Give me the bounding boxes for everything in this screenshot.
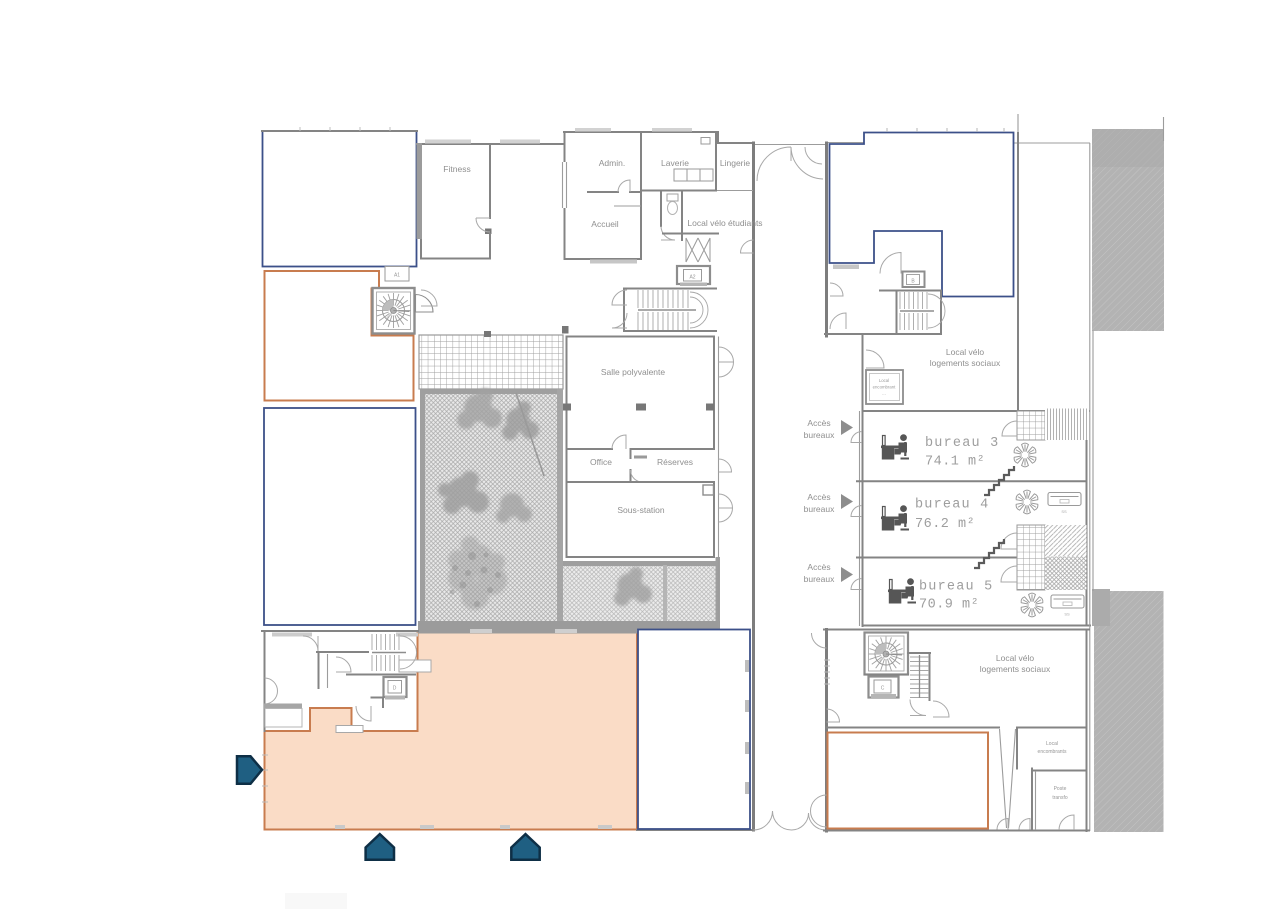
svg-text:bureaux: bureaux — [804, 574, 835, 584]
svg-text:SS: SS — [1064, 612, 1070, 617]
svg-text:76.2 m²: 76.2 m² — [915, 517, 975, 532]
svg-text:Laverie: Laverie — [661, 158, 689, 168]
svg-text:encombrants: encombrants — [1038, 749, 1067, 755]
svg-text:bureau 4: bureau 4 — [915, 498, 989, 513]
svg-text:transfo: transfo — [1052, 795, 1068, 801]
svg-text:logements sociaux: logements sociaux — [930, 358, 1001, 368]
svg-text:Accueil: Accueil — [591, 219, 619, 229]
svg-text:Local vélo étudiants: Local vélo étudiants — [687, 218, 762, 228]
svg-text:bureau 3: bureau 3 — [925, 436, 999, 451]
svg-text:encombrant: encombrant — [873, 385, 896, 390]
svg-text:Local: Local — [1046, 741, 1058, 747]
svg-text:Salle polyvalente: Salle polyvalente — [601, 367, 666, 377]
svg-text:Poste: Poste — [1054, 786, 1067, 792]
svg-text:bureaux: bureaux — [804, 430, 835, 440]
svg-text:70.9 m²: 70.9 m² — [919, 598, 979, 613]
svg-text:...: ... — [882, 391, 886, 396]
svg-text:bureau 5: bureau 5 — [919, 580, 993, 595]
svg-text:Admin.: Admin. — [599, 158, 625, 168]
svg-text:Sous-station: Sous-station — [617, 505, 665, 515]
svg-text:logements sociaux: logements sociaux — [980, 664, 1051, 674]
svg-text:SS: SS — [1061, 509, 1067, 514]
svg-text:Accès: Accès — [807, 492, 830, 502]
svg-text:Accès: Accès — [807, 562, 830, 572]
svg-text:Local vélo: Local vélo — [996, 653, 1035, 663]
svg-text:Local: Local — [879, 378, 889, 383]
svg-text:D: D — [393, 686, 397, 692]
svg-text:A1: A1 — [394, 273, 400, 279]
svg-text:bureaux: bureaux — [804, 504, 835, 514]
svg-text:A2: A2 — [689, 275, 695, 281]
svg-text:Fitness: Fitness — [443, 164, 470, 174]
svg-text:74.1 m²: 74.1 m² — [925, 455, 985, 470]
svg-text:C: C — [881, 686, 885, 692]
svg-text:Lingerie: Lingerie — [720, 158, 751, 168]
svg-text:Local vélo: Local vélo — [946, 347, 985, 357]
svg-text:Réserves: Réserves — [657, 457, 693, 467]
svg-text:Office: Office — [590, 457, 612, 467]
svg-text:Accès: Accès — [807, 418, 830, 428]
